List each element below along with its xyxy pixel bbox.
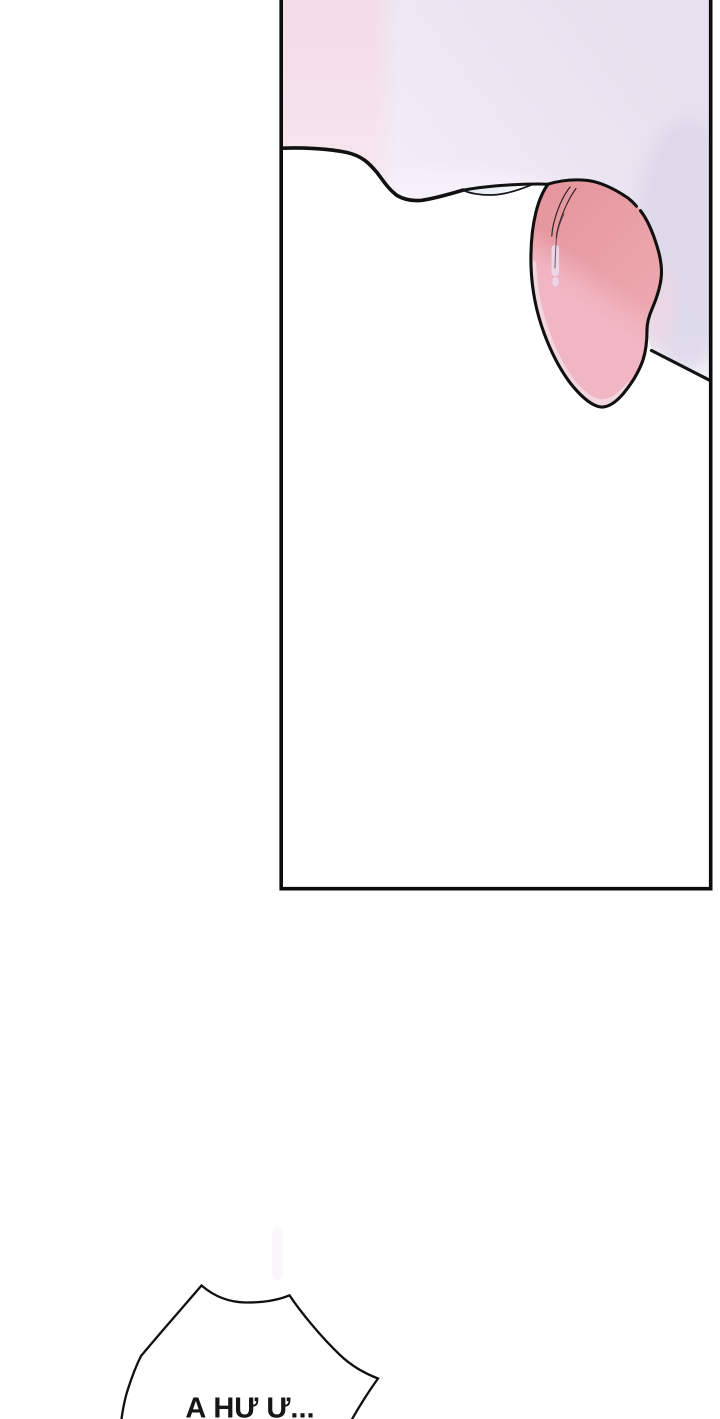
svg-text:A HƯ Ư...: A HƯ Ư...: [185, 1393, 314, 1419]
